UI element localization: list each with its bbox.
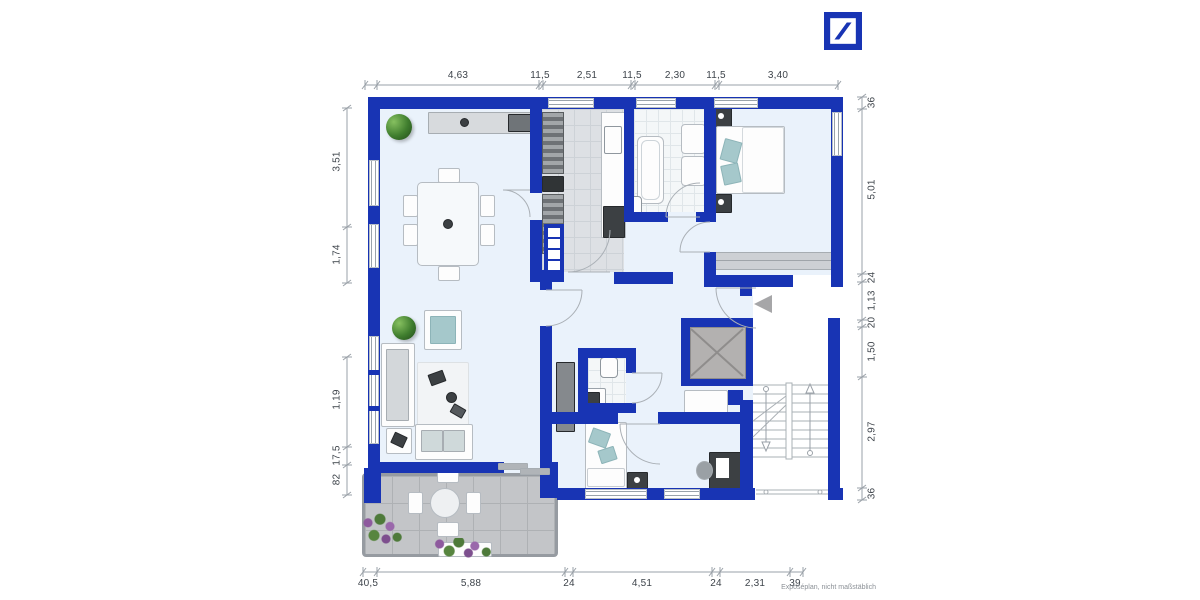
kitchen-sink xyxy=(604,126,622,154)
lamp-icon xyxy=(634,477,640,483)
armchair-cushion xyxy=(430,316,456,344)
terrace-chair xyxy=(408,492,423,514)
wall xyxy=(658,412,740,424)
floorplan-page: 4,63 11,5 2,51 11,5 2,30 11,5 3,40 3,51 … xyxy=(0,0,1200,600)
dimension-label: 1,19 xyxy=(332,380,343,420)
dining-chair xyxy=(438,266,460,281)
window xyxy=(832,112,842,156)
wall xyxy=(364,468,381,503)
terrace-chair xyxy=(466,492,481,514)
elevator-wall xyxy=(681,318,753,327)
dimension-label: 3,51 xyxy=(332,142,343,182)
window-mullion xyxy=(369,406,379,411)
office-chair xyxy=(696,461,713,480)
wall xyxy=(704,109,716,222)
bathtub-inner xyxy=(641,140,660,200)
dimension-label: 2,30 xyxy=(655,70,695,81)
wall xyxy=(540,282,552,290)
dimension-label: 2,51 xyxy=(567,70,607,81)
window xyxy=(664,489,700,499)
sliding-door xyxy=(520,468,550,475)
dining-chair xyxy=(438,168,460,183)
sofa-cushions xyxy=(386,349,409,421)
sink xyxy=(681,156,706,186)
wall xyxy=(704,252,716,275)
dining-chair xyxy=(403,195,418,217)
wall xyxy=(624,109,634,222)
shelf-cell xyxy=(548,250,560,259)
wall xyxy=(540,326,552,462)
dimension-label: 1,50 xyxy=(867,332,878,372)
pillow xyxy=(720,162,742,185)
dining-chair xyxy=(480,195,495,217)
plant-icon xyxy=(392,316,416,340)
wall xyxy=(828,318,840,500)
window xyxy=(548,98,594,108)
cooktop xyxy=(603,206,625,238)
landing-opening xyxy=(793,275,831,288)
lamp-icon xyxy=(718,199,724,205)
window xyxy=(369,224,379,268)
wall xyxy=(740,287,752,296)
dining-chair xyxy=(403,224,418,246)
dimension-label: 24 xyxy=(549,578,589,589)
dimension-label: 40,5 xyxy=(348,578,388,589)
wall xyxy=(530,109,542,193)
elevator-wall xyxy=(681,318,690,386)
dimension-label: 4,63 xyxy=(438,70,478,81)
desk-papers xyxy=(716,458,729,478)
loveseat-cushion xyxy=(421,430,443,452)
wardrobe xyxy=(712,252,833,270)
deutsche-bank-logo xyxy=(824,12,862,50)
rug-decor xyxy=(446,392,457,403)
footnote: Exposéplan, nicht maßstäblich xyxy=(690,584,876,591)
window xyxy=(369,336,379,444)
table-centerpiece xyxy=(443,219,453,229)
dimension-label: 82 xyxy=(332,460,343,500)
window-mullion xyxy=(369,370,379,375)
dimension-label: 36 xyxy=(867,474,878,514)
wall xyxy=(696,212,716,222)
dimension-label: 5,88 xyxy=(451,578,491,589)
dimension-label: 11,5 xyxy=(696,70,736,81)
elevator-cab xyxy=(690,327,746,379)
wall xyxy=(740,400,753,488)
terrace-chair xyxy=(437,522,459,537)
shelf-cell xyxy=(548,261,560,270)
wall xyxy=(626,348,636,373)
kitchen-cabinet xyxy=(542,112,564,174)
loveseat-cushion xyxy=(443,430,465,452)
dimension-label: 5,01 xyxy=(867,170,878,210)
toilet xyxy=(600,357,618,378)
sink xyxy=(681,124,706,154)
wall xyxy=(530,220,542,270)
terrace-table xyxy=(430,488,460,518)
dimension-label: 11,5 xyxy=(520,70,560,81)
sideboard-decor xyxy=(460,118,469,127)
oven xyxy=(542,176,564,192)
dimension-label: 4,51 xyxy=(622,578,662,589)
stairwell-floor xyxy=(753,287,831,488)
lamp-icon xyxy=(718,113,724,119)
flower-bed-icon xyxy=(430,538,494,558)
window xyxy=(714,98,758,108)
wall xyxy=(368,97,843,109)
wall xyxy=(704,275,793,287)
dimension-label: 3,40 xyxy=(758,70,798,81)
dining-chair xyxy=(480,224,495,246)
flower-bed-icon xyxy=(362,512,402,548)
wall xyxy=(373,462,504,473)
dimension-label: 11,5 xyxy=(612,70,652,81)
stairwell-railing-gap xyxy=(755,488,828,500)
shelf-cell xyxy=(548,239,560,248)
plant-icon xyxy=(386,114,412,140)
window xyxy=(636,98,676,108)
wall xyxy=(578,403,636,413)
wall xyxy=(624,212,668,222)
dimension-label: 36 xyxy=(867,83,878,123)
dimension-label: 1,74 xyxy=(332,235,343,275)
duvet xyxy=(742,127,784,193)
bed-pillow xyxy=(587,468,625,487)
wall xyxy=(614,272,673,284)
deutsche-bank-slash-icon xyxy=(824,12,862,50)
window xyxy=(369,160,379,206)
window xyxy=(585,489,647,499)
dimension-label: 2,97 xyxy=(867,412,878,452)
shelf-cell xyxy=(548,228,560,237)
wall xyxy=(552,412,618,424)
